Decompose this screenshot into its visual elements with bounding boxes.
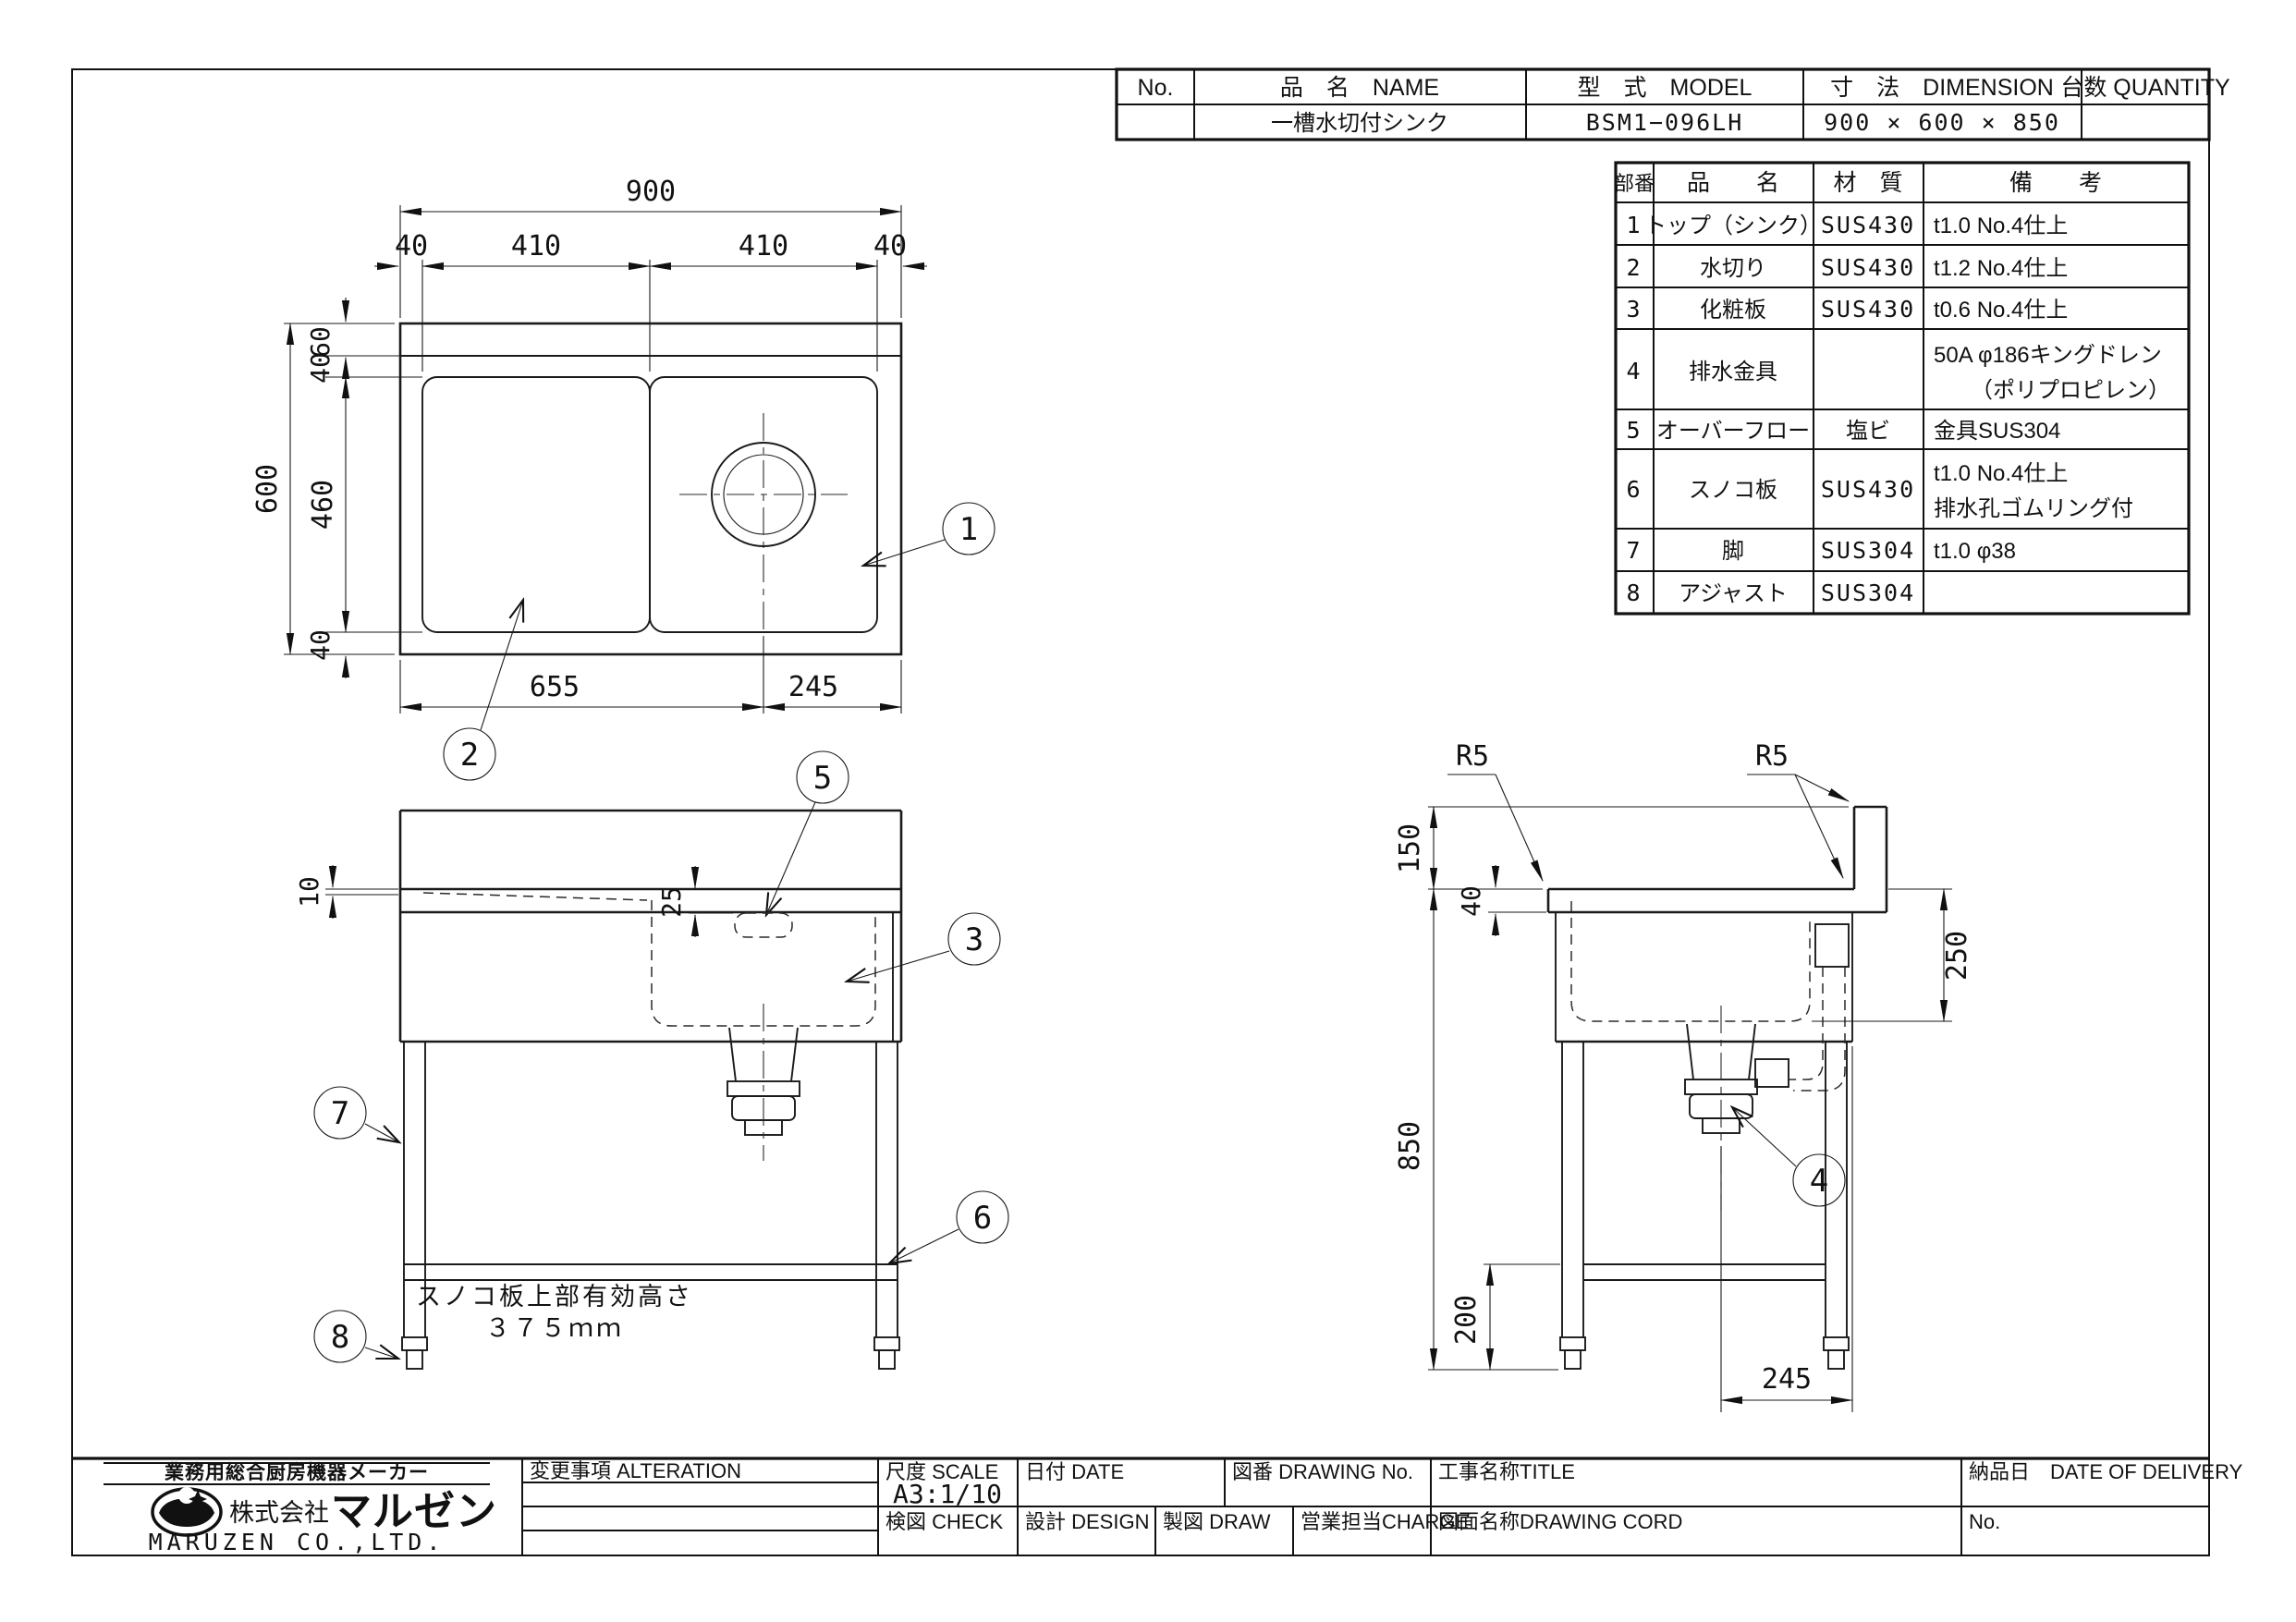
part-name: 水切り: [1700, 256, 1766, 281]
svg-text:8: 8: [331, 1319, 349, 1356]
part-ref: 1: [1626, 212, 1642, 238]
part-material: SUS430: [1821, 212, 1915, 238]
maker-tagline: 業務用総合厨房機器メーカー: [165, 1461, 429, 1483]
title-block: 変更事項 ALTERATION 尺度 SCALE A3:1/10 日付 DATE…: [72, 1458, 2243, 1555]
dim-span-left: 410: [511, 230, 561, 262]
maruzen-logo-block: 業務用総合厨房機器メーカー 株式会社 マルゼン MARUZEN CO.,LTD.: [104, 1461, 497, 1555]
dim-rim-top: 40: [305, 352, 336, 384]
svg-text:5: 5: [813, 760, 832, 797]
shelf-clearance-note-line1: スノコ板上部有効高さ: [416, 1283, 693, 1311]
header-col-quantity: 台数 QUANTITY: [2060, 75, 2230, 101]
plan-view: 900 40 410 410 40 600 460 60 40 40 655 2…: [251, 176, 995, 915]
parts-row-6: 6 スノコ板 SUS430 t1.0 No.4仕上 排水孔ゴムリング付: [1626, 461, 2133, 521]
parts-row-2: 2 水切り SUS430 t1.2 No.4仕上: [1626, 254, 2068, 281]
svg-text:R5: R5: [1456, 740, 1489, 773]
balloon-1: 1: [863, 503, 995, 566]
company-brand: マルゼン: [331, 1489, 497, 1534]
part-material: SUS430: [1821, 296, 1915, 323]
balloon-6: 6: [889, 1191, 1008, 1263]
dim-bowl-depth-side: 250: [1941, 931, 1973, 981]
part-name: トップ（シンク）: [1644, 213, 1822, 238]
dim-drain-offset: 245: [1762, 1363, 1812, 1396]
part-material: SUS430: [1821, 476, 1915, 503]
part-remarks: 金具SUS304: [1934, 419, 2060, 444]
header-col-name: 品 名 NAME: [1280, 75, 1439, 101]
drawing-cord-label: 図面名称DRAWING CORD: [1438, 1510, 1682, 1533]
scale-value: A3:1/10: [893, 1479, 1002, 1509]
side-drain-trap: [1685, 1006, 1789, 1211]
parts-row-4: 4 排水金具 50A φ186キングドレン （ポリプロピレン）: [1626, 343, 2170, 403]
part-ref: 5: [1626, 417, 1642, 444]
parts-table: 部番 品 名 材 質 備 考 1 トップ（シンク） SUS430 t1.0 No…: [1614, 163, 2189, 614]
dim-drainboard-recess: 10: [294, 876, 324, 908]
delivery-no-label: No.: [1969, 1510, 2000, 1533]
part-remarks: t1.0 φ38: [1934, 539, 2016, 564]
dim-to-drain: 655: [530, 671, 580, 703]
balloon-3: 3: [847, 913, 1000, 982]
dim-backsplash-height: 150: [1394, 823, 1426, 873]
part-remarks-2: （ポリプロピレン）: [1971, 378, 2170, 403]
drawing-sheet: No. 品 名 NAME 型 式 MODEL 寸 法 DIMENSION 台数 …: [0, 0, 2296, 1622]
part-material: 塩ビ: [1846, 419, 1890, 444]
parts-col-material: 材 質: [1833, 170, 1902, 196]
dim-shelf-height: 200: [1450, 1295, 1483, 1345]
radius-callout-front: R5: [1447, 740, 1543, 881]
part-name: アジャスト: [1679, 581, 1788, 606]
header-col-model: 型 式 MODEL: [1578, 75, 1753, 101]
drawing-no-label: 図番 DRAWING No.: [1232, 1460, 1413, 1483]
date-label: 日付 DATE: [1025, 1460, 1124, 1483]
dim-rim-bottom: 40: [305, 629, 336, 661]
dim-bowl-depth: 460: [307, 480, 339, 530]
part-name: 排水金具: [1689, 360, 1777, 384]
parts-col-remarks: 備 考: [2009, 170, 2102, 196]
company-name-en: MARUZEN CO.,LTD.: [149, 1529, 446, 1555]
svg-text:2: 2: [460, 737, 479, 774]
title-label: 工事名称TITLE: [1438, 1460, 1575, 1483]
part-name: 脚: [1722, 539, 1744, 564]
svg-text:6: 6: [973, 1200, 992, 1237]
svg-text:R5: R5: [1755, 740, 1789, 773]
radius-callout-rear: R5: [1747, 740, 1849, 878]
part-ref: 7: [1626, 537, 1642, 564]
balloon-8: 8: [314, 1311, 398, 1362]
part-ref: 2: [1626, 254, 1642, 281]
parts-row-7: 7 脚 SUS304 t1.0 φ38: [1626, 537, 2016, 564]
overflow-fitting: [1815, 924, 1849, 967]
svg-text:3: 3: [965, 921, 983, 958]
parts-col-name: 品 名: [1687, 170, 1779, 196]
part-ref: 3: [1626, 296, 1642, 323]
overflow-slot: [735, 913, 792, 937]
header-col-dimension: 寸 法 DIMENSION: [1830, 75, 2054, 101]
balloon-2: 2: [444, 600, 523, 780]
svg-text:4: 4: [1810, 1163, 1828, 1200]
dim-edge-height: 40: [1456, 885, 1486, 917]
parts-row-1: 1 トップ（シンク） SUS430 t1.0 No.4仕上: [1626, 212, 2068, 238]
part-material: SUS304: [1821, 579, 1915, 606]
shelf-clearance-note-line2: ３７５ｍｍ: [485, 1314, 624, 1342]
sheet-border: [72, 69, 2209, 1555]
parts-row-8: 8 アジャスト SUS304: [1626, 579, 1915, 606]
svg-text:7: 7: [331, 1095, 349, 1132]
header-col-no: No.: [1138, 75, 1174, 101]
part-remarks: t1.0 No.4仕上: [1934, 213, 2068, 238]
part-remarks: t0.6 No.4仕上: [1934, 298, 2068, 323]
design-label: 設計 DESIGN: [1025, 1510, 1149, 1533]
dim-overflow-offset: 25: [656, 886, 687, 918]
item-name: 一槽水切付シンク: [1271, 111, 1448, 136]
dim-drain-to-edge: 245: [788, 671, 838, 703]
front-drain-trap: [727, 1004, 800, 1161]
part-ref: 4: [1626, 358, 1642, 384]
header-table: No. 品 名 NAME 型 式 MODEL 寸 法 DIMENSION 台数 …: [1117, 69, 2230, 140]
front-view: 10 25 スノコ板上部有効高さ ３７５ｍｍ 3 7 6 8: [294, 811, 1008, 1369]
dim-margin-left: 40: [395, 230, 428, 262]
parts-col-ref: 部番: [1614, 172, 1655, 195]
parts-row-3: 3 化粧板 SUS430 t0.6 No.4仕上: [1626, 296, 2068, 323]
part-material: SUS304: [1821, 537, 1915, 564]
part-remarks-2: 排水孔ゴムリング付: [1934, 496, 2133, 521]
company-prefix: 株式会社: [229, 1499, 329, 1527]
part-remarks: t1.0 No.4仕上: [1934, 461, 2068, 486]
balloon-5: 5: [766, 751, 849, 915]
cad-drawing-canvas: No. 品 名 NAME 型 式 MODEL 寸 法 DIMENSION 台数 …: [0, 0, 2296, 1622]
dim-margin-right: 40: [873, 230, 907, 262]
check-label: 検図 CHECK: [885, 1510, 1003, 1533]
part-name: オーバーフロー: [1656, 419, 1810, 444]
balloon-7: 7: [314, 1087, 399, 1142]
alteration-label: 変更事項 ALTERATION: [530, 1459, 741, 1482]
part-remarks: 50A φ186キングドレン: [1934, 343, 2162, 368]
part-name: 化粧板: [1700, 298, 1766, 323]
dim-overall-height: 850: [1394, 1121, 1426, 1171]
parts-row-5: 5 オーバーフロー 塩ビ 金具SUS304: [1626, 417, 2060, 444]
front-legs: [402, 1042, 899, 1369]
side-view: R5 R5 150 850 40 200 250: [1394, 740, 1973, 1412]
balloon-4: 4: [1732, 1107, 1845, 1206]
item-model: BSM1−096LH: [1586, 109, 1744, 136]
draw-label: 製図 DRAW: [1163, 1510, 1271, 1533]
svg-text:1: 1: [959, 511, 978, 548]
delivery-label: 納品日 DATE OF DELIVERY: [1969, 1460, 2243, 1483]
part-ref: 8: [1626, 579, 1642, 606]
part-name: スノコ板: [1689, 478, 1777, 503]
dim-overall-depth: 600: [251, 464, 284, 514]
dim-overall-width: 900: [626, 176, 676, 208]
part-remarks: t1.2 No.4仕上: [1934, 256, 2068, 281]
part-ref: 6: [1626, 476, 1642, 503]
part-material: SUS430: [1821, 254, 1915, 281]
dim-span-right: 410: [739, 230, 788, 262]
item-dimension: 900 × 600 × 850: [1824, 109, 2060, 136]
